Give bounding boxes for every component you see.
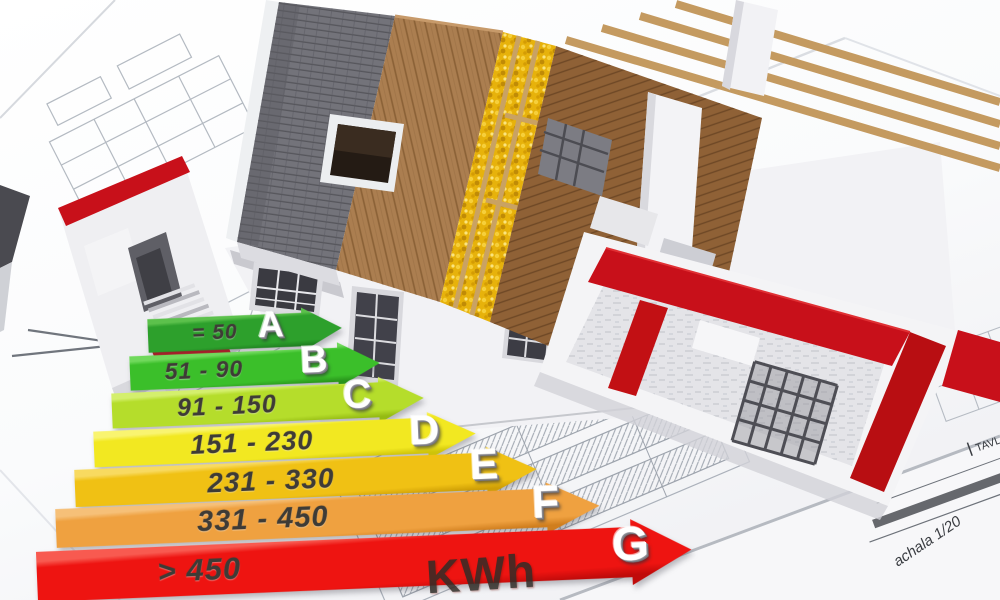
energy-grade-f: F xyxy=(531,479,560,525)
energy-rating-chart: = 50 A 51 - 90 B 91 - 150 C 151 - 230 D … xyxy=(0,0,1000,600)
energy-grade-a: A xyxy=(257,306,284,343)
energy-grade-c: C xyxy=(342,374,373,415)
scene: achala 1/20 TAVL xyxy=(0,0,1000,600)
energy-grade-g: G xyxy=(611,520,650,570)
energy-grade-e: E xyxy=(469,443,499,487)
kwh-unit-label: KWh xyxy=(424,543,537,600)
energy-grade-b: B xyxy=(299,341,328,380)
energy-grade-d: D xyxy=(408,409,440,452)
